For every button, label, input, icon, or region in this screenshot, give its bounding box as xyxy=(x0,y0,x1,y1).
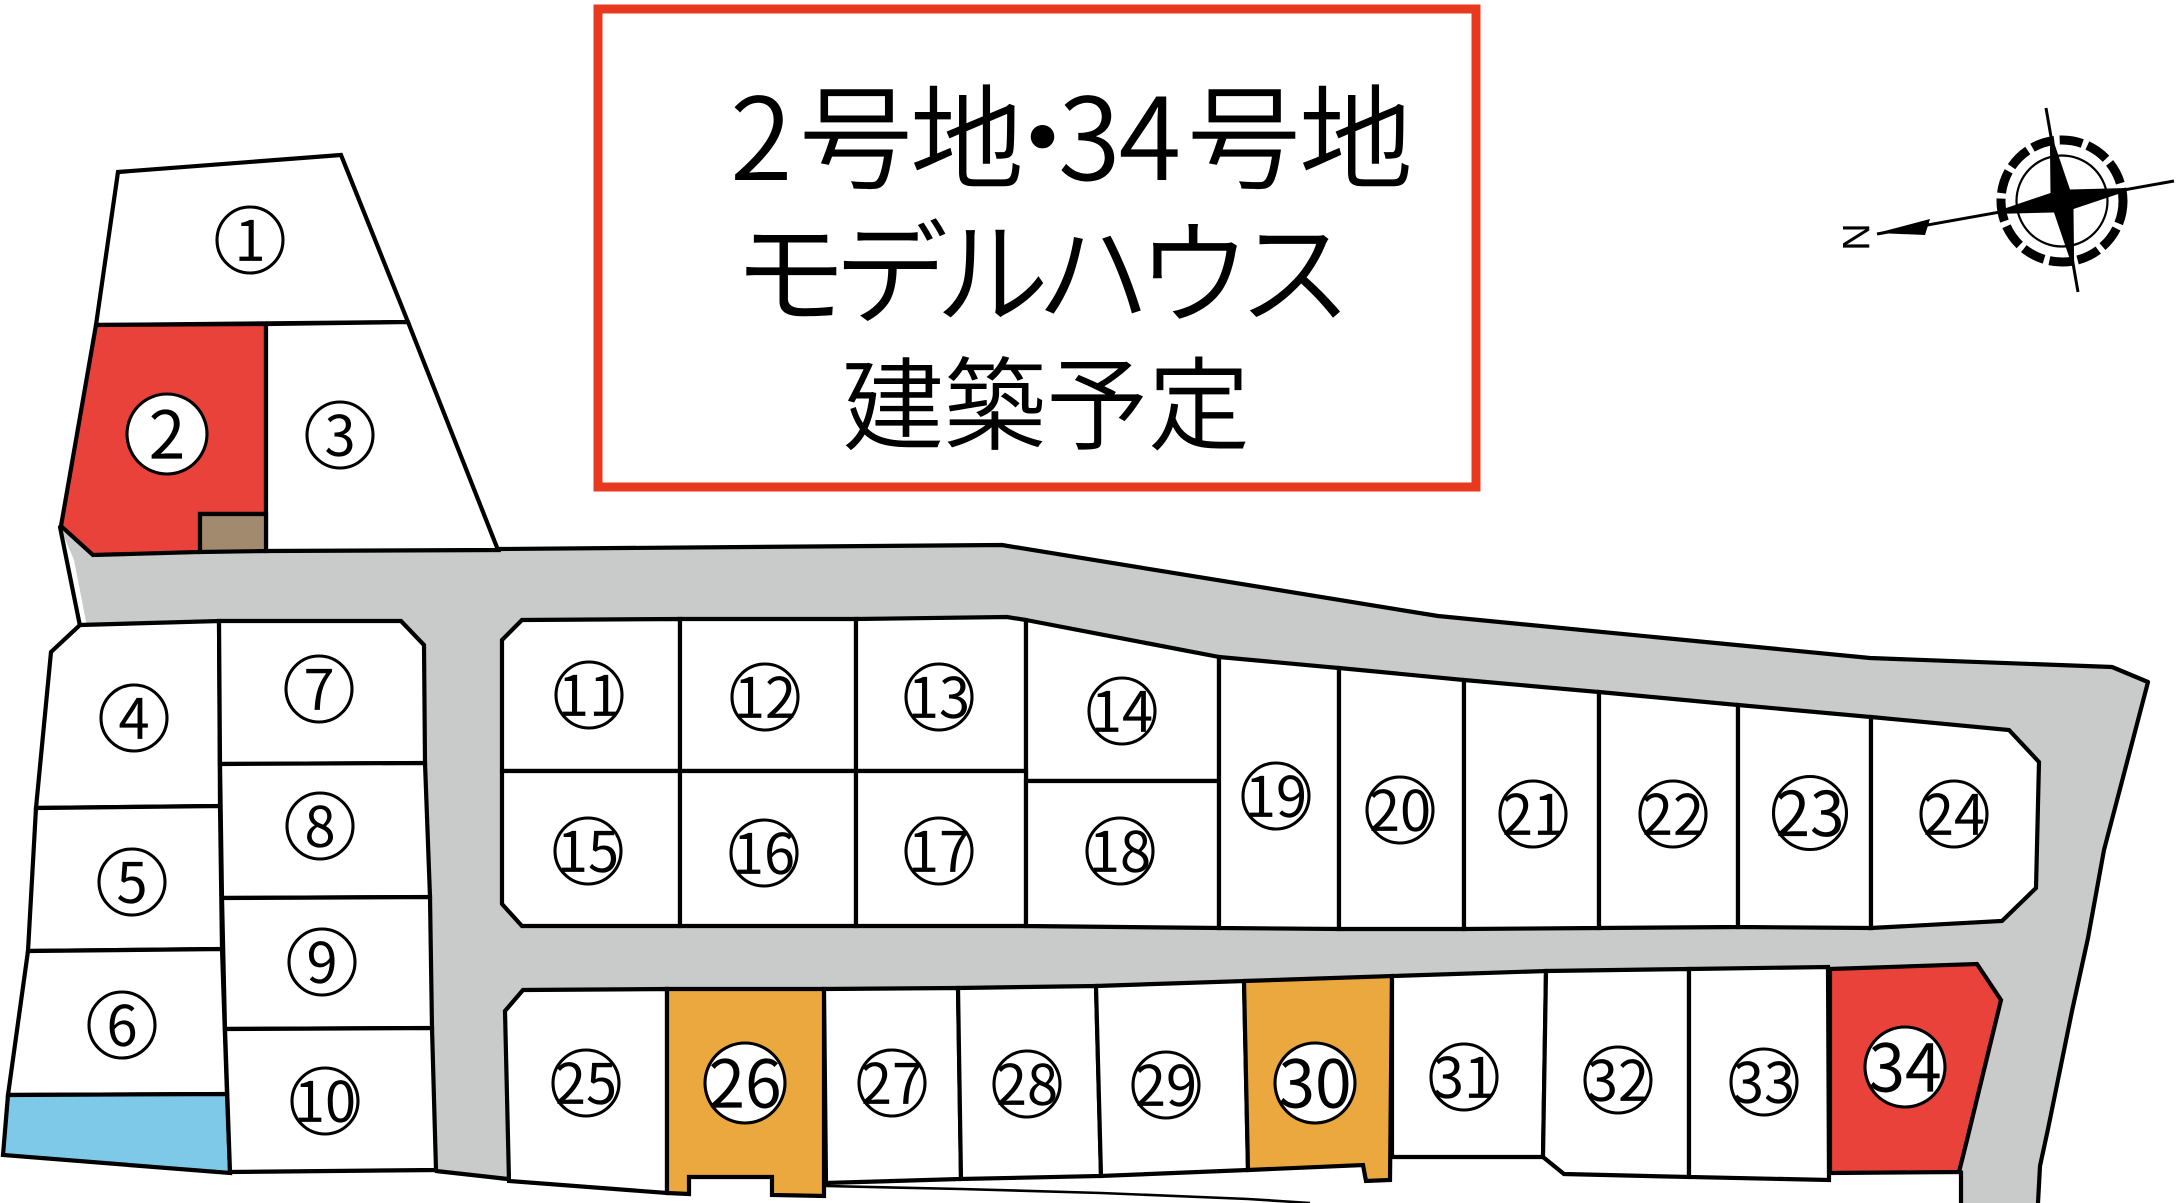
svg-text:N: N xyxy=(1834,223,1876,250)
